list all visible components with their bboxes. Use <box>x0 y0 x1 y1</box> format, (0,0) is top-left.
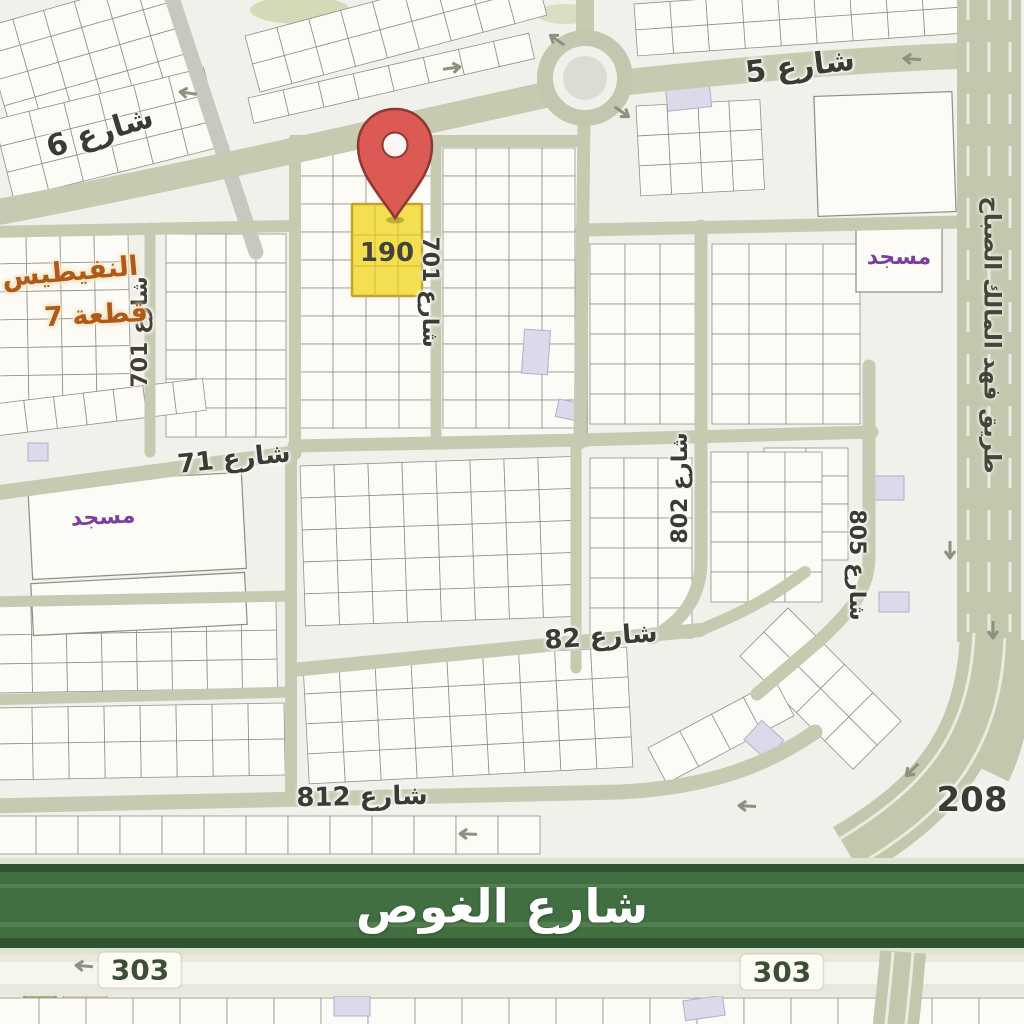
plot-grid <box>443 148 575 428</box>
building <box>521 329 550 375</box>
plot-grid <box>300 457 577 626</box>
plot-grid <box>711 452 822 602</box>
map-graphics: 190 <box>0 0 1024 1024</box>
street-label-805: شارع 805 <box>845 509 867 620</box>
building <box>334 996 370 1016</box>
plot-grid <box>0 998 1024 1024</box>
street-label-812: شارع 812 <box>296 783 428 811</box>
plot-grid <box>712 244 860 424</box>
route-badge-303-left: 303 <box>99 953 181 988</box>
plot-number-label: 190 <box>360 238 414 268</box>
plot-grid <box>636 100 765 196</box>
roundabout <box>545 38 625 118</box>
mosque-label-right: مسجد <box>867 247 932 269</box>
plot-grid <box>0 703 285 780</box>
building <box>879 592 909 612</box>
street-label-802: شارع 802 <box>670 432 692 543</box>
map-canvas[interactable]: 190 شارع 6 شارع 5 شارع 701 شارع 701 النف… <box>0 0 1024 1024</box>
mosque-label-left: مسجد <box>70 505 136 530</box>
expressway-label-ghous: شارع الغوص <box>356 884 648 931</box>
street-label-701-left: شارع 701 <box>130 276 152 387</box>
route-number-208: 208 <box>937 783 1008 817</box>
street-label-82: شارع 82 <box>544 620 659 654</box>
plot-grid <box>590 244 695 424</box>
plot-grid <box>0 816 540 854</box>
highway-south-continuation <box>885 952 913 1024</box>
highlighted-plot-190[interactable]: 190 <box>352 204 422 296</box>
building <box>28 443 48 461</box>
area-label-block: قطعة 7 <box>43 299 148 331</box>
road-label-fahad: طريق فهد المالك الصباح <box>980 196 1003 473</box>
route-badge-303-right: 303 <box>741 955 823 990</box>
street-label-701-center: شارع 701 <box>418 236 440 347</box>
